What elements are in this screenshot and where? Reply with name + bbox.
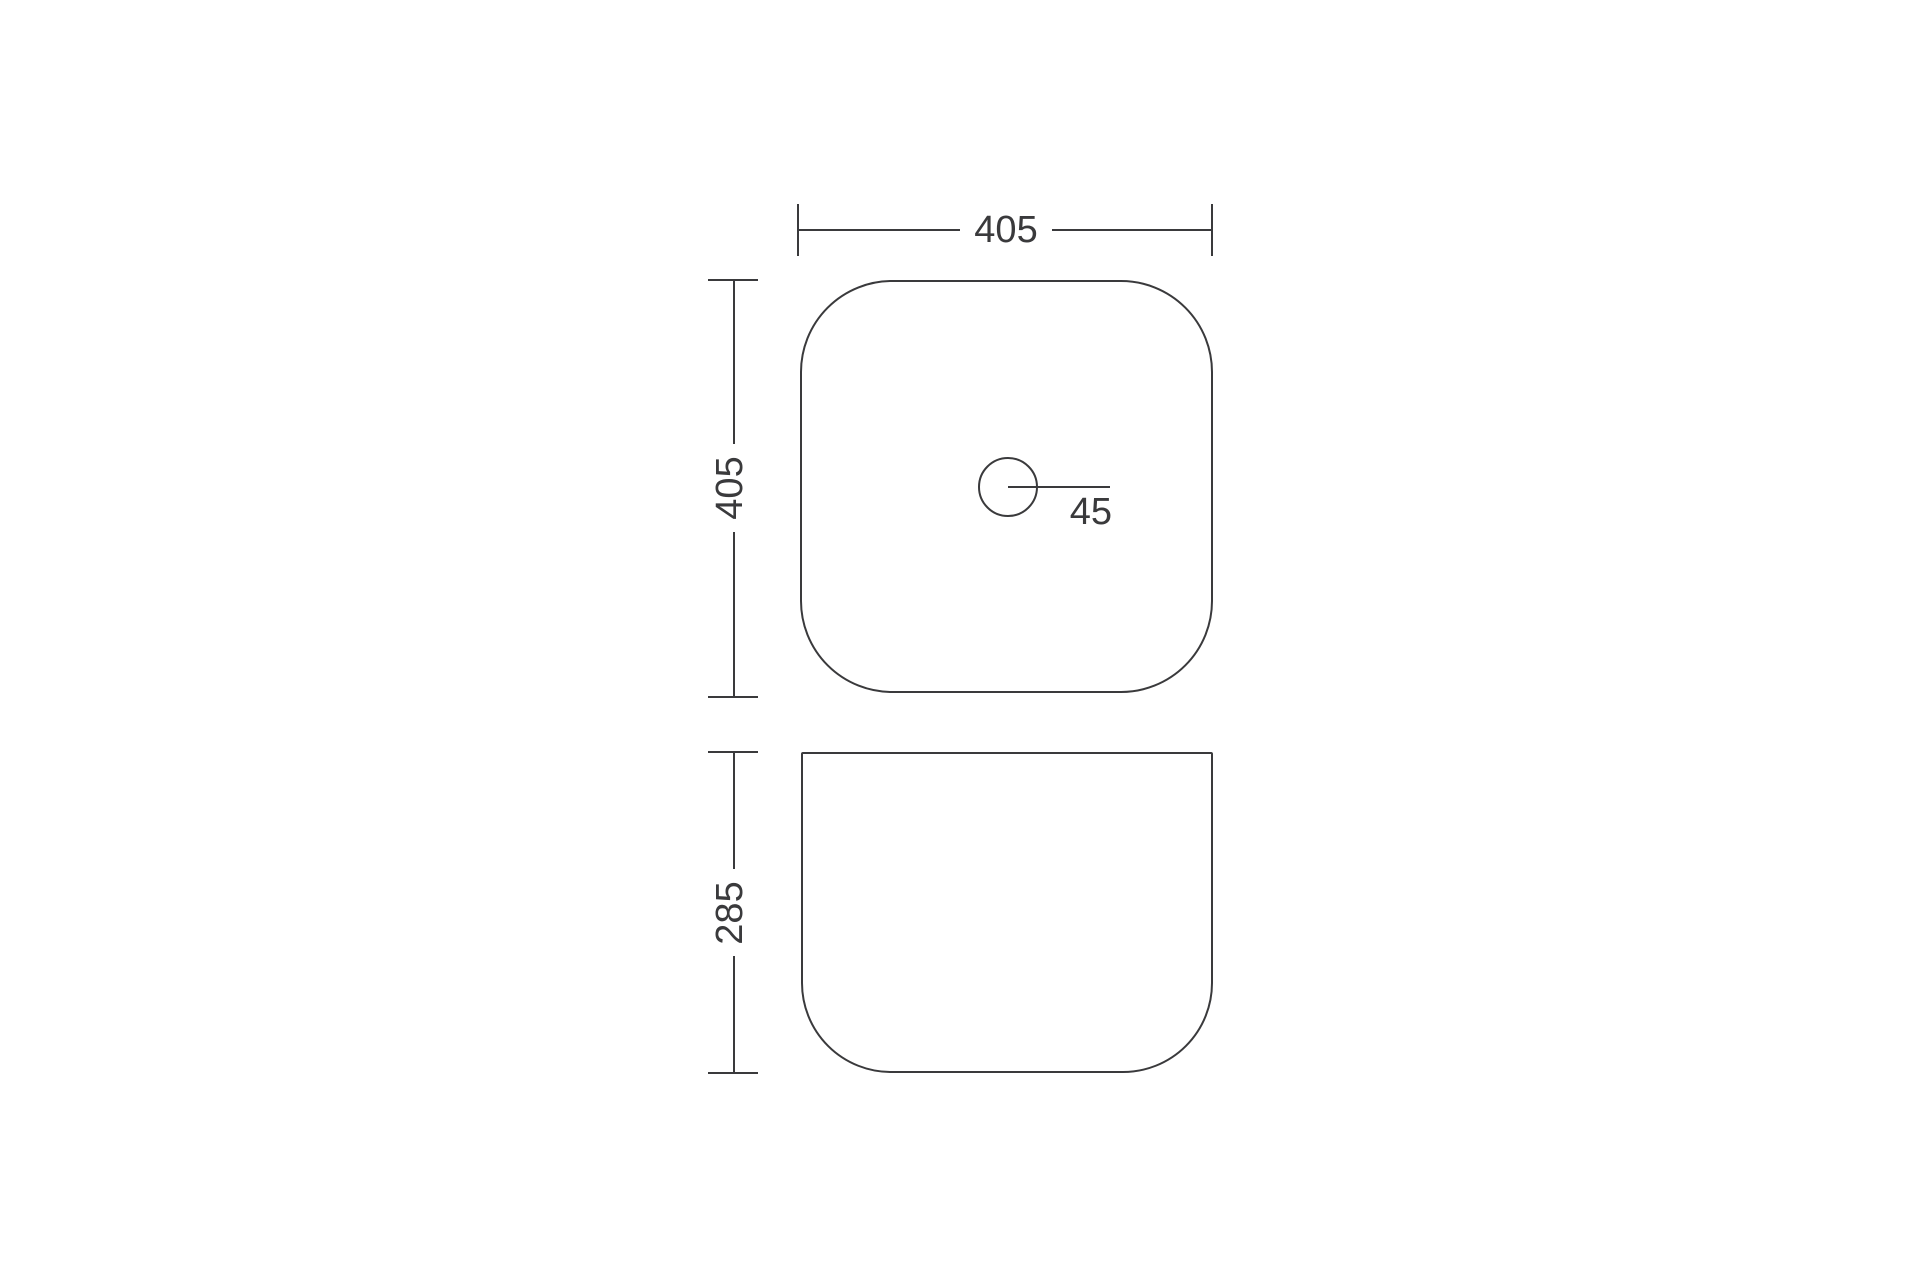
front-height-dim-label: 285 <box>710 833 750 993</box>
top-width-dim-label: 405 <box>926 210 1086 250</box>
technical-drawing-canvas: 45 405 405 285 <box>0 0 1921 1281</box>
top-height-dim-label: 405 <box>710 408 750 568</box>
faucet-hole-dim-label: 45 <box>1030 492 1112 532</box>
faucet-hole-leader-line <box>1008 486 1110 488</box>
front-view-basin-outline <box>801 752 1213 1073</box>
